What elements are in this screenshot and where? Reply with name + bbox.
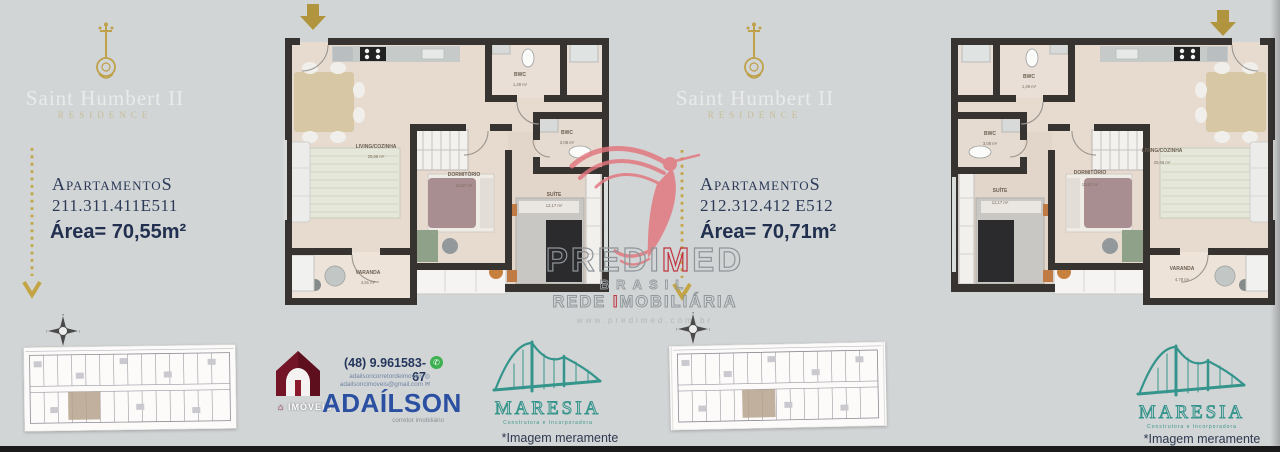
- svg-text:BWC: BWC: [514, 72, 526, 78]
- project-subtitle: RESIDENCE: [10, 110, 200, 120]
- predimed-brasil-text: BRASIL: [505, 277, 785, 292]
- key-icon: [88, 22, 124, 82]
- svg-text:SUÍTE: SUÍTE: [993, 186, 1008, 194]
- predimed-brand-text: PREDIMED: [505, 243, 785, 276]
- svg-text:4,78 m²: 4,78 m²: [1175, 277, 1190, 282]
- svg-text:4,81 m²: 4,81 m²: [361, 280, 376, 285]
- email-address: adailsoncimoveis@gmail.com ✉: [334, 381, 430, 388]
- dotted-down-arrow: [22, 146, 42, 302]
- svg-text:BWC: BWC: [1023, 74, 1035, 80]
- apartments-label: ApartamentoS: [52, 174, 173, 195]
- bottom-bar: [0, 446, 1280, 452]
- svg-text:3,08 m²: 3,08 m²: [983, 141, 998, 146]
- maresia-tagline: Construtora e Incorporadora: [1134, 424, 1250, 430]
- project-title: Saint Humbert II: [10, 86, 200, 111]
- svg-text:10,57 m²: 10,57 m²: [1082, 182, 1099, 187]
- highlighted-unit: [68, 391, 100, 419]
- email-icon: ✉: [425, 381, 430, 388]
- whatsapp-icon: ✆: [430, 356, 443, 369]
- compass-icon: [46, 314, 80, 351]
- predimed-watermark: PREDIMED BRASIL REDE IMOBILIÁRIA www.pre…: [505, 243, 785, 325]
- area-label: Área= 70,55m²: [50, 221, 186, 244]
- apartments-label: ApartamentoS: [700, 174, 821, 195]
- svg-text:BWC: BWC: [984, 131, 996, 137]
- apartment-numbers: 211.311.411E511: [52, 196, 178, 216]
- project-title: Saint Humbert II: [660, 86, 850, 111]
- svg-text:1,49 m²: 1,49 m²: [1022, 84, 1037, 89]
- building-keyplan-left: [23, 345, 236, 432]
- realtor-name: ADAÍLSON: [322, 388, 448, 419]
- key-icon: [736, 22, 772, 82]
- maresia-name: MARESIA: [1134, 402, 1250, 424]
- predimed-url-text: www.predimed.com.br: [505, 316, 785, 325]
- tiny-house-icon: ⌂: [278, 402, 284, 412]
- flyer-canvas: N S O L: [0, 0, 1280, 452]
- maresia-bridge-icon: [492, 334, 604, 398]
- svg-text:25,66 m²: 25,66 m²: [1154, 160, 1171, 165]
- building-keyplan-right: [669, 342, 887, 431]
- svg-text:VARANDA: VARANDA: [356, 270, 381, 276]
- instagram-icon: ◎: [425, 373, 431, 380]
- svg-text:12,17 m²: 12,17 m²: [992, 200, 1009, 205]
- maresia-name: MARESIA: [490, 398, 606, 420]
- svg-text:25,66 m²: 25,66 m²: [368, 154, 385, 159]
- project-subtitle: RESIDENCE: [660, 110, 850, 120]
- svg-text:VARANDA: VARANDA: [1170, 266, 1195, 272]
- svg-text:DORMITÓRIO: DORMITÓRIO: [1074, 168, 1107, 176]
- adailson-house-icon: [276, 350, 320, 400]
- floorplan-right: LIVING/COZINHA 25,66 m² DORMITÓRIO 10,57…: [944, 12, 1280, 312]
- highlighted-unit: [742, 389, 776, 418]
- svg-text:10,57 m²: 10,57 m²: [456, 183, 473, 188]
- svg-text:LIVING/COZINHA: LIVING/COZINHA: [356, 144, 397, 150]
- svg-text:LIVING/COZINHA: LIVING/COZINHA: [1142, 148, 1183, 154]
- svg-text:DORMITÓRIO: DORMITÓRIO: [448, 170, 481, 178]
- svg-text:BWC: BWC: [561, 130, 573, 136]
- predimed-rede-text: REDE IMOBILIÁRIA: [505, 293, 785, 312]
- svg-text:1,49 m²: 1,49 m²: [513, 82, 528, 87]
- maresia-bridge-icon: [1136, 338, 1248, 402]
- social-handle: adailsoncorretordeimoveis ◎: [334, 373, 430, 380]
- apartment-numbers: 212.312.412 E512: [700, 196, 833, 216]
- compass-icon: [676, 312, 710, 349]
- realtor-role: corretor imobiliário: [322, 417, 444, 424]
- right-edge-shade: [1270, 0, 1280, 452]
- maresia-tagline: Construtora e Incorporadora: [490, 420, 606, 426]
